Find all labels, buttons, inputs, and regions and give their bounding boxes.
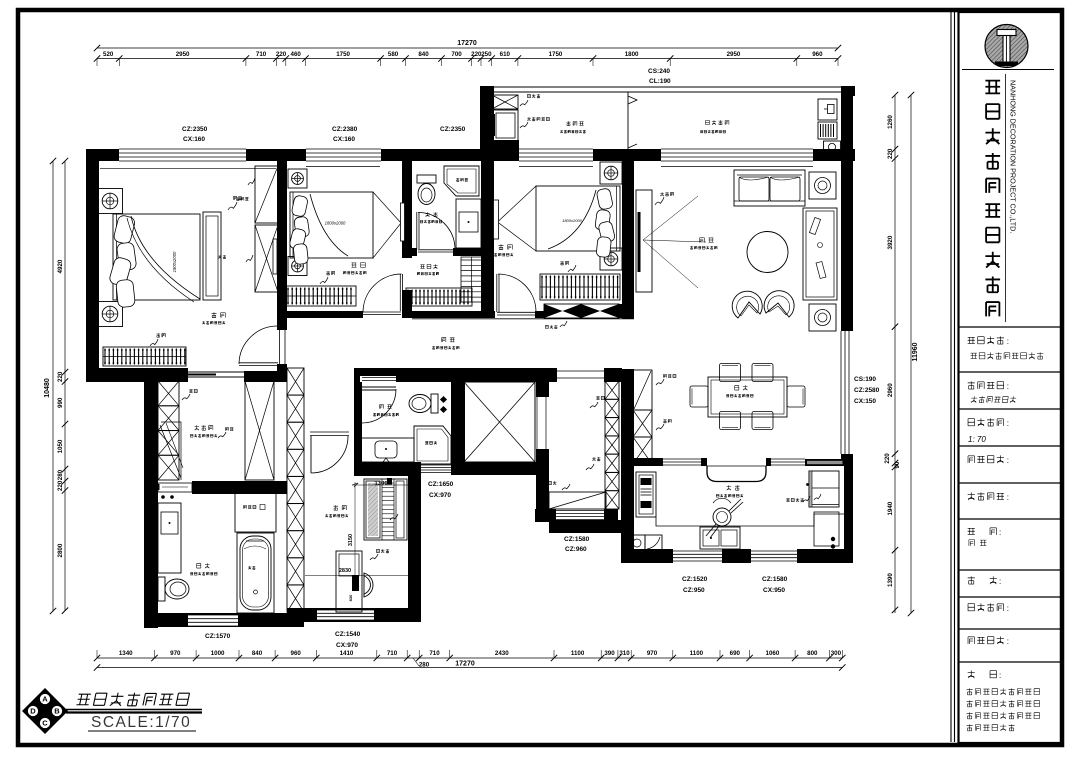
svg-text:CZ:2350: CZ:2350: [440, 126, 466, 133]
svg-text:CZ:1650: CZ:1650: [428, 481, 454, 488]
svg-text:1800x2000: 1800x2000: [172, 251, 177, 272]
svg-text:CL:190: CL:190: [649, 78, 671, 85]
svg-text::: :: [1007, 382, 1009, 391]
svg-text:280: 280: [419, 662, 430, 669]
svg-text:CZ:2380: CZ:2380: [332, 126, 358, 133]
svg-text:1000: 1000: [211, 650, 225, 657]
svg-text:220: 220: [276, 51, 287, 58]
svg-text:800: 800: [807, 650, 818, 657]
svg-text:2960: 2960: [887, 383, 894, 397]
svg-text:960: 960: [812, 51, 823, 58]
svg-text:390: 390: [604, 650, 615, 657]
svg-text::: :: [1007, 637, 1009, 646]
svg-text::: :: [999, 577, 1001, 586]
svg-text:1390: 1390: [887, 573, 894, 587]
svg-text::: :: [1007, 493, 1009, 502]
svg-text:250: 250: [481, 51, 492, 58]
svg-text:960: 960: [291, 650, 302, 657]
svg-text:90: 90: [894, 461, 901, 468]
svg-text:970: 970: [170, 650, 181, 657]
svg-text:580: 580: [388, 51, 399, 58]
svg-text:CS:240: CS:240: [648, 68, 670, 75]
svg-text:830: 830: [348, 594, 353, 601]
svg-text:NANHONG DECORATION PROJECT CO.: NANHONG DECORATION PROJECT CO.,LTD.: [1009, 80, 1018, 233]
svg-text:220: 220: [887, 148, 894, 159]
svg-text:220: 220: [57, 480, 64, 491]
svg-text:CZ:1540: CZ:1540: [335, 631, 361, 638]
svg-text:CX:150: CX:150: [854, 398, 876, 405]
svg-text:1: 70: 1: 70: [968, 435, 986, 444]
svg-text:D: D: [30, 707, 36, 716]
svg-text:220: 220: [57, 371, 64, 382]
svg-text:17270: 17270: [455, 661, 475, 668]
svg-text:1800x2000: 1800x2000: [325, 221, 346, 226]
svg-text:CZ:1580: CZ:1580: [564, 536, 590, 543]
svg-text:310: 310: [619, 650, 630, 657]
svg-text:CS:190: CS:190: [854, 376, 876, 383]
svg-text:1800x2000: 1800x2000: [562, 218, 583, 223]
svg-text:1800: 1800: [625, 51, 639, 58]
svg-text:460: 460: [291, 51, 302, 58]
svg-text:2950: 2950: [176, 51, 190, 58]
svg-text:CZ:960: CZ:960: [565, 546, 587, 553]
svg-text:2430: 2430: [495, 650, 509, 657]
svg-text::: :: [1007, 456, 1009, 465]
svg-text:CZ:2580: CZ:2580: [854, 387, 880, 394]
svg-text:1100: 1100: [690, 650, 704, 657]
svg-text:1340: 1340: [119, 650, 133, 657]
svg-text:B: B: [54, 707, 60, 716]
svg-text:220: 220: [884, 453, 891, 464]
svg-text:1410: 1410: [340, 650, 354, 657]
svg-text:970: 970: [647, 650, 658, 657]
svg-text:CZ:950: CZ:950: [683, 587, 705, 594]
svg-text:10480: 10480: [44, 378, 51, 398]
svg-text:CZ:1580: CZ:1580: [762, 576, 788, 583]
svg-text:4920: 4920: [57, 259, 64, 273]
svg-text::: :: [999, 528, 1001, 537]
svg-text:CX:950: CX:950: [763, 587, 785, 594]
svg-text:1060: 1060: [766, 650, 780, 657]
svg-text:990: 990: [57, 397, 64, 408]
svg-text::: :: [1007, 337, 1009, 346]
svg-text:CX:160: CX:160: [333, 136, 355, 143]
svg-text:A: A: [42, 695, 48, 704]
svg-text:CZ:2350: CZ:2350: [182, 126, 208, 133]
svg-text:610: 610: [500, 51, 511, 58]
svg-text:1940: 1940: [887, 501, 894, 515]
svg-text:11960: 11960: [912, 342, 919, 361]
svg-text:17270: 17270: [457, 40, 477, 47]
svg-text:710: 710: [256, 51, 267, 58]
svg-text:CZ:1520: CZ:1520: [682, 576, 708, 583]
svg-text:280: 280: [57, 469, 64, 480]
svg-text:2950: 2950: [727, 51, 741, 58]
svg-text:CX:970: CX:970: [429, 492, 451, 499]
svg-text:CX:970: CX:970: [336, 642, 358, 649]
svg-text:1100: 1100: [571, 650, 585, 657]
svg-text:1050: 1050: [57, 439, 64, 453]
svg-text:1300: 1300: [374, 481, 388, 487]
svg-text:1260: 1260: [887, 115, 894, 129]
svg-text::: :: [1007, 419, 1009, 428]
svg-text::: :: [1007, 604, 1009, 613]
svg-text:700: 700: [451, 51, 462, 58]
svg-text:710: 710: [429, 650, 440, 657]
svg-text:710: 710: [387, 650, 398, 657]
svg-text:2830: 2830: [339, 568, 351, 574]
svg-text:520: 520: [103, 51, 114, 58]
svg-text::: :: [999, 671, 1001, 680]
svg-text:SCALE:1/70: SCALE:1/70: [91, 714, 191, 731]
svg-text:840: 840: [252, 650, 263, 657]
svg-text:3150: 3150: [348, 534, 354, 546]
svg-text:3920: 3920: [887, 235, 894, 249]
svg-text:300: 300: [831, 650, 842, 657]
svg-text:2800: 2800: [57, 543, 64, 557]
svg-text:1750: 1750: [336, 51, 350, 58]
svg-text:840: 840: [418, 51, 429, 58]
svg-text:690: 690: [730, 650, 741, 657]
svg-text:CX:160: CX:160: [183, 136, 205, 143]
svg-text:C: C: [42, 719, 48, 728]
svg-text:CZ:1570: CZ:1570: [205, 633, 231, 640]
svg-text:1750: 1750: [549, 51, 563, 58]
